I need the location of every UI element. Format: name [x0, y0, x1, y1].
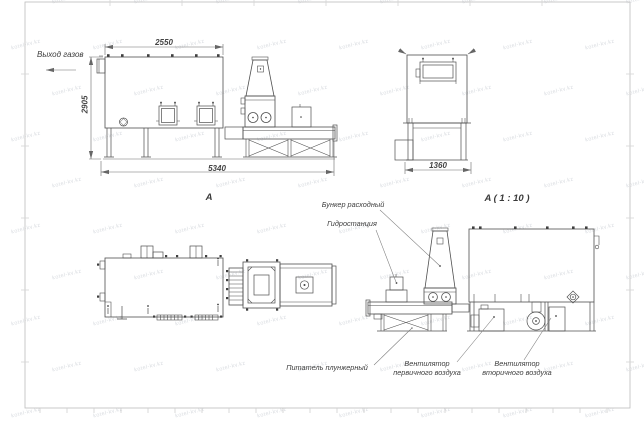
hopper-box [241, 96, 275, 127]
rear-view-drawing [366, 226, 599, 331]
view-a-scale-label: A ( 1 : 10 ) [465, 193, 549, 204]
front-view-drawing [395, 50, 475, 160]
pin-marks [107, 258, 219, 314]
round-flange [120, 118, 128, 126]
rear-hydraulic [386, 274, 407, 302]
ribbed-flange [226, 268, 243, 305]
hopper-chimney [246, 57, 274, 96]
callout-leaders [374, 210, 551, 365]
primary-fan [471, 305, 504, 331]
feeder-truss [243, 139, 337, 157]
view-a-label: A [200, 192, 218, 203]
front-opening [416, 58, 456, 84]
secondary-fan [527, 302, 565, 331]
plan-hopper [243, 259, 280, 311]
dim-top-width: 2550 [146, 38, 182, 47]
drawing-sheet: kotel-kv.kzkotel-kv.kzkotel-kv.kzkotel-k… [0, 0, 644, 430]
inspection-hatches [156, 102, 218, 125]
hydraulic-box [292, 104, 311, 127]
bottom-hatches [153, 315, 222, 320]
rear-hopper-chimney [425, 228, 455, 288]
gas-outlet-label: Выход газов [37, 51, 119, 60]
side-view-drawing [97, 54, 337, 159]
dim-front-width: 1360 [420, 161, 456, 170]
diamond-flange [567, 291, 579, 303]
callout-secondary-air-fan: Вентилятор вторичного воздуха [480, 360, 554, 377]
bolt-marks [107, 54, 220, 57]
callout-hydraulic-station: Гидростанция [324, 220, 380, 229]
dim-height: 2905 [81, 87, 90, 123]
callout-hopper: Бункер расходный [314, 201, 392, 210]
feeder-band [225, 125, 337, 141]
callout-plunger-feeder: Питатель плунжерный [276, 364, 378, 373]
plan-view-drawing [97, 246, 336, 320]
dim-total-length: 5340 [199, 164, 235, 173]
plan-feeder-body [280, 264, 336, 306]
right-bracket [594, 236, 599, 249]
callout-primary-air-fan: Вентилятор первичного воздуха [390, 360, 464, 377]
